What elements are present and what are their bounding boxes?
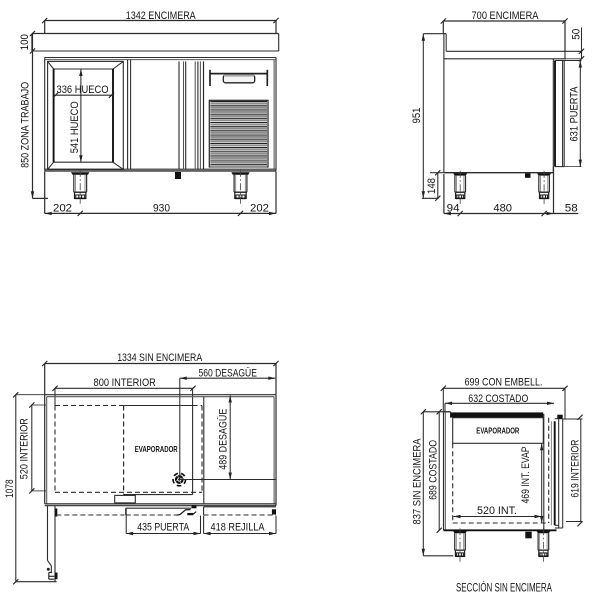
svg-text:837 SIN ENCIMERA: 837 SIN ENCIMERA — [412, 438, 424, 525]
svg-text:850 ZONA TRABAJO: 850 ZONA TRABAJO — [20, 82, 32, 168]
svg-text:520 INTERIOR: 520 INTERIOR — [19, 418, 31, 479]
svg-text:520 INT.: 520 INT. — [477, 505, 517, 517]
svg-text:700 ENCIMERA: 700 ENCIMERA — [472, 10, 540, 22]
svg-text:202: 202 — [250, 202, 269, 214]
svg-text:94: 94 — [447, 202, 460, 214]
svg-text:50: 50 — [570, 29, 582, 40]
svg-text:148: 148 — [426, 178, 438, 194]
svg-text:SECCIÓN SIN ENCIMERA: SECCIÓN SIN ENCIMERA — [456, 581, 552, 594]
svg-text:689 COSTADO: 689 COSTADO — [427, 440, 439, 500]
svg-text:951: 951 — [411, 108, 423, 124]
svg-text:699 CON EMBELL.: 699 CON EMBELL. — [465, 376, 543, 388]
svg-text:336 HUECO: 336 HUECO — [57, 84, 109, 96]
svg-text:631 PUERTA: 631 PUERTA — [569, 86, 581, 142]
svg-text:EVAPORADOR: EVAPORADOR — [135, 444, 178, 454]
svg-text:418 REJILLA: 418 REJILLA — [211, 521, 266, 533]
svg-text:800 INTERIOR: 800 INTERIOR — [94, 377, 156, 389]
svg-text:58: 58 — [565, 202, 578, 214]
svg-text:202: 202 — [53, 202, 72, 214]
svg-text:1078: 1078 — [4, 479, 16, 498]
svg-text:100: 100 — [19, 34, 31, 50]
svg-text:619 INTERIOR: 619 INTERIOR — [569, 440, 581, 498]
svg-text:1342 ENCIMERA: 1342 ENCIMERA — [126, 10, 197, 22]
svg-text:435 PUERTA: 435 PUERTA — [137, 521, 190, 533]
svg-text:EVAPORADOR: EVAPORADOR — [476, 425, 519, 435]
svg-text:541 HUECO: 541 HUECO — [69, 101, 81, 153]
svg-text:1334 SIN ENCIMERA: 1334 SIN ENCIMERA — [117, 352, 203, 364]
svg-text:930: 930 — [153, 202, 170, 214]
svg-text:480: 480 — [493, 202, 512, 214]
svg-text:489 DESAGÜE: 489 DESAGÜE — [217, 409, 229, 470]
svg-text:469 INT. EVAP: 469 INT. EVAP — [520, 447, 532, 504]
svg-text:560 DESAGÜE: 560 DESAGÜE — [198, 368, 257, 380]
